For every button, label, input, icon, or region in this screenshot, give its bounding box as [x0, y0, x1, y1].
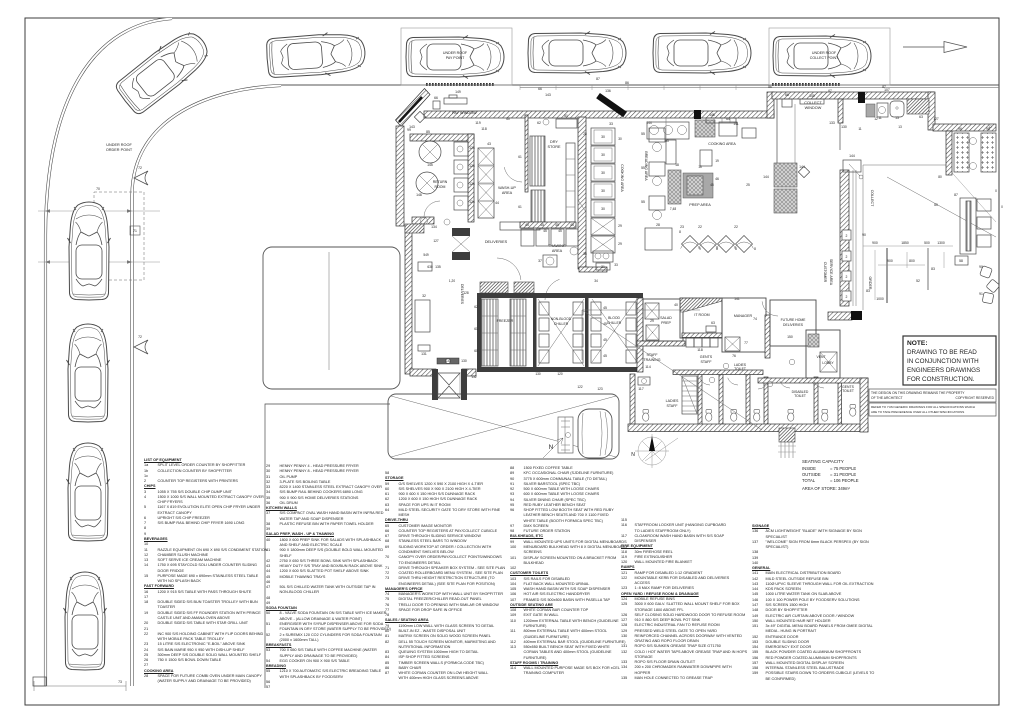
svg-text:7,48: 7,48 — [670, 207, 676, 211]
svg-text:REFER TO YUM GENERIC DRAWINGS: REFER TO YUM GENERIC DRAWINGS FOR ALL SP… — [871, 405, 975, 409]
svg-text:0: 0 — [995, 189, 997, 193]
svg-text:DELIVERIES: DELIVERIES — [485, 240, 508, 244]
svg-text:144: 144 — [849, 154, 855, 158]
svg-text:64: 64 — [726, 117, 730, 121]
svg-text:MANAGER: MANAGER — [734, 314, 753, 318]
svg-text:ROOM: ROOM — [435, 185, 446, 189]
svg-text:135: 135 — [435, 265, 441, 269]
svg-text:13: 13 — [895, 116, 899, 120]
svg-text:630: 630 — [427, 265, 433, 269]
svg-text:83: 83 — [931, 267, 935, 271]
svg-text:119: 119 — [475, 121, 481, 125]
svg-text:36: 36 — [583, 252, 587, 256]
svg-text:133: 133 — [829, 121, 835, 125]
svg-text:45: 45 — [603, 306, 607, 310]
svg-text:76: 76 — [732, 354, 736, 358]
svg-text:45: 45 — [525, 223, 529, 227]
svg-text:CHILLER: CHILLER — [607, 321, 622, 325]
svg-text:73: 73 — [118, 680, 122, 684]
svg-text:63: 63 — [711, 321, 715, 325]
svg-text:45: 45 — [710, 183, 714, 187]
svg-text:VENT: VENT — [816, 355, 825, 359]
svg-text:141: 141 — [733, 122, 739, 126]
svg-text:19: 19 — [715, 159, 719, 163]
svg-text:52: 52 — [916, 279, 920, 283]
svg-text:85: 85 — [426, 130, 430, 134]
svg-text:148: 148 — [416, 193, 422, 197]
svg-text:30: 30 — [601, 207, 605, 211]
svg-text:117: 117 — [638, 387, 644, 391]
svg-text:= 106 PEOPLE: = 106 PEOPLE — [830, 478, 859, 483]
svg-text:25: 25 — [746, 183, 750, 187]
svg-text:PAY POINT: PAY POINT — [446, 56, 465, 60]
svg-text:122: 122 — [577, 385, 583, 389]
svg-text:32: 32 — [422, 294, 426, 298]
svg-text:77: 77 — [744, 341, 748, 345]
svg-text:45: 45 — [540, 223, 544, 227]
svg-text:22: 22 — [734, 225, 738, 229]
svg-text:130: 130 — [535, 372, 541, 376]
svg-text:UNDER ROOF: UNDER ROOF — [106, 143, 132, 147]
svg-text:8: 8 — [754, 247, 756, 251]
svg-text:83: 83 — [866, 289, 870, 293]
svg-text:BLOOD: BLOOD — [608, 316, 620, 320]
svg-text:141: 141 — [734, 297, 740, 301]
svg-text:124: 124 — [469, 146, 475, 150]
svg-text:45: 45 — [543, 229, 547, 233]
svg-text:COLLECT POINT: COLLECT POINT — [810, 56, 839, 60]
svg-text:134: 134 — [431, 225, 437, 229]
svg-text:124: 124 — [469, 200, 475, 204]
svg-text:29: 29 — [618, 224, 622, 228]
svg-text:SERVICE AREA: SERVICE AREA — [829, 259, 833, 286]
svg-text:90: 90 — [979, 265, 983, 269]
svg-text:37: 37 — [538, 259, 542, 263]
svg-text:128: 128 — [463, 291, 469, 295]
svg-text:COOKING AREA: COOKING AREA — [708, 142, 736, 146]
svg-text:60: 60 — [474, 349, 478, 353]
svg-text:549: 549 — [423, 253, 429, 257]
svg-text:UNDER ROOF: UNDER ROOF — [443, 51, 468, 55]
svg-text:ORDER POINT: ORDER POINT — [106, 148, 133, 152]
svg-text:67: 67 — [828, 89, 832, 93]
svg-text:30: 30 — [618, 137, 622, 141]
svg-text:= 75 PEOPLE: = 75 PEOPLE — [830, 466, 856, 471]
svg-text:1000: 1000 — [876, 297, 884, 301]
svg-text:127: 127 — [933, 117, 939, 121]
svg-text:TRAINING: TRAINING — [643, 358, 660, 362]
svg-text:2: 2 — [846, 275, 848, 279]
svg-text:143: 143 — [545, 93, 551, 97]
svg-text:86: 86 — [625, 81, 629, 85]
svg-text:144: 144 — [646, 121, 652, 125]
svg-text:SEATING CAPACITY: SEATING CAPACITY — [802, 459, 844, 464]
svg-text:33: 33 — [614, 263, 618, 267]
svg-text:28: 28 — [656, 223, 660, 227]
svg-text:800: 800 — [909, 259, 915, 263]
svg-text:63: 63 — [919, 115, 923, 119]
svg-text:OF THE ARCHITECT: OF THE ARCHITECT — [871, 396, 903, 400]
svg-text:GENTS: GENTS — [700, 355, 713, 359]
svg-text:THE DESIGN ON THIS DRAWING REM: THE DESIGN ON THIS DRAWING REMAINS THE P… — [871, 391, 965, 395]
svg-text:30: 30 — [601, 153, 605, 157]
svg-text:11: 11 — [878, 116, 882, 120]
svg-text:60: 60 — [506, 117, 510, 121]
svg-text:900: 900 — [887, 259, 893, 263]
svg-text:150: 150 — [787, 335, 793, 339]
svg-text:18: 18 — [675, 163, 679, 167]
svg-text:THAWING: THAWING — [548, 244, 566, 248]
svg-text:2: 2 — [846, 295, 848, 299]
svg-text:40: 40 — [674, 303, 678, 307]
svg-text:46: 46 — [715, 177, 719, 181]
svg-text:29: 29 — [618, 242, 622, 246]
svg-text:127: 127 — [433, 239, 439, 243]
svg-text:16: 16 — [698, 165, 702, 169]
svg-text:143: 143 — [409, 125, 415, 129]
svg-text:31: 31 — [601, 265, 605, 269]
svg-text:ORDER: ORDER — [868, 277, 872, 290]
svg-text:OUTSIDE: OUTSIDE — [802, 472, 821, 477]
svg-text:62: 62 — [474, 305, 478, 309]
svg-text:85: 85 — [934, 203, 938, 207]
svg-text:80: 80 — [938, 175, 942, 179]
svg-text:PREP AREA: PREP AREA — [689, 203, 711, 207]
svg-text:11: 11 — [858, 127, 862, 131]
svg-text:STAFF: STAFF — [700, 360, 712, 364]
svg-text:CUSTOMER: CUSTOMER — [823, 262, 827, 283]
svg-text:8: 8 — [735, 247, 737, 251]
svg-text:AREA OF STORE: 349m²: AREA OF STORE: 349m² — [802, 486, 850, 491]
svg-text:66: 66 — [785, 93, 789, 97]
svg-text:23: 23 — [680, 225, 684, 229]
svg-text:45: 45 — [570, 223, 574, 227]
svg-text:74: 74 — [753, 317, 757, 321]
svg-text:146: 146 — [709, 113, 715, 117]
svg-text:FREEZER: FREEZER — [497, 319, 514, 323]
svg-text:30: 30 — [601, 135, 605, 139]
svg-text:61: 61 — [474, 327, 478, 331]
svg-text:149: 149 — [455, 90, 461, 94]
svg-text:DRAWING TO BE READ: DRAWING TO BE READ — [907, 349, 977, 356]
svg-text:WASH-UP: WASH-UP — [498, 186, 516, 190]
svg-text:124: 124 — [469, 182, 475, 186]
svg-text:TOILET: TOILET — [794, 394, 806, 398]
svg-text:NOTE:: NOTE: — [907, 340, 928, 347]
svg-text:91: 91 — [979, 292, 983, 296]
svg-text:118: 118 — [481, 127, 487, 131]
svg-text:30: 30 — [601, 189, 605, 193]
svg-text:72: 72 — [138, 335, 142, 339]
svg-text:FUTURE HOME: FUTURE HOME — [781, 318, 807, 322]
svg-text:1300: 1300 — [937, 241, 945, 245]
svg-text:COLLECT: COLLECT — [870, 190, 874, 207]
svg-text:WINDOW: WINDOW — [805, 106, 822, 110]
svg-text:COLLECT: COLLECT — [804, 101, 822, 105]
svg-text:87: 87 — [882, 85, 886, 89]
svg-text:900: 900 — [872, 241, 878, 245]
svg-text:130: 130 — [841, 125, 847, 129]
svg-text:1,20: 1,20 — [449, 279, 455, 283]
svg-text:22: 22 — [698, 225, 702, 229]
svg-text:131: 131 — [421, 352, 427, 356]
svg-text:12: 12 — [874, 117, 878, 121]
svg-text:8: 8 — [716, 247, 718, 251]
svg-text:118: 118 — [697, 348, 703, 352]
svg-text:70: 70 — [96, 187, 100, 191]
svg-text:44: 44 — [495, 201, 499, 205]
svg-text:45: 45 — [603, 338, 607, 342]
svg-text:55: 55 — [641, 166, 645, 170]
svg-text:2: 2 — [846, 234, 848, 238]
svg-text:145: 145 — [427, 163, 433, 167]
svg-text:ARE TO TAKE PRECEDENCE OVER AL: ARE TO TAKE PRECEDENCE OVER ALL OTHER SP… — [871, 410, 964, 414]
svg-text:131: 131 — [445, 359, 451, 363]
svg-text:34: 34 — [594, 279, 598, 283]
svg-text:500: 500 — [924, 241, 930, 245]
svg-text:130: 130 — [461, 359, 467, 363]
svg-text:87: 87 — [954, 193, 958, 197]
svg-text:55: 55 — [641, 200, 645, 204]
svg-text:1850: 1850 — [901, 241, 909, 245]
svg-text:61: 61 — [518, 155, 522, 159]
svg-text:= 31 PEOPLE: = 31 PEOPLE — [830, 472, 856, 477]
svg-text:TOILET: TOILET — [842, 389, 854, 393]
svg-text:N: N — [631, 452, 635, 458]
svg-text:45: 45 — [558, 229, 562, 233]
svg-text:124: 124 — [469, 164, 475, 168]
svg-text:NON-BLOOD: NON-BLOOD — [551, 317, 572, 321]
svg-text:30: 30 — [601, 171, 605, 175]
svg-text:LADIES: LADIES — [666, 399, 679, 403]
svg-text:ENGINEERS DRAWINGS: ENGINEERS DRAWINGS — [907, 367, 980, 374]
svg-text:61: 61 — [518, 205, 522, 209]
svg-text:9: 9 — [699, 247, 701, 251]
svg-text:66: 66 — [538, 87, 542, 91]
svg-text:33: 33 — [609, 122, 613, 126]
svg-text:62: 62 — [537, 121, 541, 125]
svg-text:STAFF: STAFF — [646, 353, 658, 357]
svg-text:STAFF: STAFF — [666, 404, 678, 408]
svg-text:PAY WINDOW: PAY WINDOW — [452, 111, 477, 115]
svg-text:TOTAL: TOTAL — [802, 478, 816, 483]
svg-text:AREA: AREA — [552, 249, 563, 253]
svg-text:IN CONJUNCTION WITH: IN CONJUNCTION WITH — [907, 358, 979, 365]
svg-text:CHILLER: CHILLER — [554, 322, 569, 326]
svg-text:12: 12 — [988, 125, 992, 129]
svg-text:AREA: AREA — [502, 191, 513, 195]
svg-text:43: 43 — [487, 142, 491, 146]
svg-text:123: 123 — [597, 387, 603, 391]
svg-text:IT ROOM: IT ROOM — [694, 313, 709, 317]
svg-text:114: 114 — [645, 365, 651, 369]
svg-text:INSIDE: INSIDE — [802, 466, 816, 471]
svg-text:RETURN: RETURN — [433, 180, 448, 184]
svg-text:58: 58 — [959, 259, 963, 263]
svg-text:55: 55 — [641, 132, 645, 136]
svg-text:SALAD: SALAD — [660, 316, 672, 320]
svg-text:COOKING AREA: COOKING AREA — [620, 164, 624, 192]
svg-text:66: 66 — [434, 96, 438, 100]
svg-text:90: 90 — [862, 233, 866, 237]
svg-text:86: 86 — [768, 85, 772, 89]
svg-text:132: 132 — [471, 375, 477, 379]
svg-text:136: 136 — [605, 89, 611, 93]
svg-text:45: 45 — [603, 354, 607, 358]
svg-text:72: 72 — [138, 166, 142, 170]
svg-text:87: 87 — [596, 77, 600, 81]
svg-text:51: 51 — [564, 114, 568, 118]
svg-text:DRY: DRY — [550, 140, 558, 144]
svg-text:25: 25 — [583, 132, 587, 136]
svg-text:UNDER ROOF: UNDER ROOF — [812, 51, 837, 55]
svg-text:DELIVERIES: DELIVERIES — [783, 323, 804, 327]
svg-text:71: 71 — [133, 229, 137, 233]
svg-text:149: 149 — [809, 94, 815, 98]
svg-text:FOR CONSTRUCTION.: FOR CONSTRUCTION. — [907, 376, 975, 383]
svg-text:2: 2 — [846, 255, 848, 259]
svg-text:8: 8 — [679, 230, 681, 234]
svg-text:COPYRIGHT RESERVED: COPYRIGHT RESERVED — [955, 396, 994, 400]
svg-text:45: 45 — [555, 223, 559, 227]
svg-text:120: 120 — [557, 372, 563, 376]
svg-text:13: 13 — [898, 125, 902, 129]
svg-text:0: 0 — [1001, 205, 1003, 209]
svg-text:144: 144 — [763, 175, 769, 179]
svg-text:PREP: PREP — [661, 321, 671, 325]
svg-text:29: 29 — [650, 319, 654, 323]
svg-text:LOBBY: LOBBY — [822, 361, 834, 365]
svg-text:STORE: STORE — [547, 145, 560, 149]
svg-text:96: 96 — [958, 127, 962, 131]
